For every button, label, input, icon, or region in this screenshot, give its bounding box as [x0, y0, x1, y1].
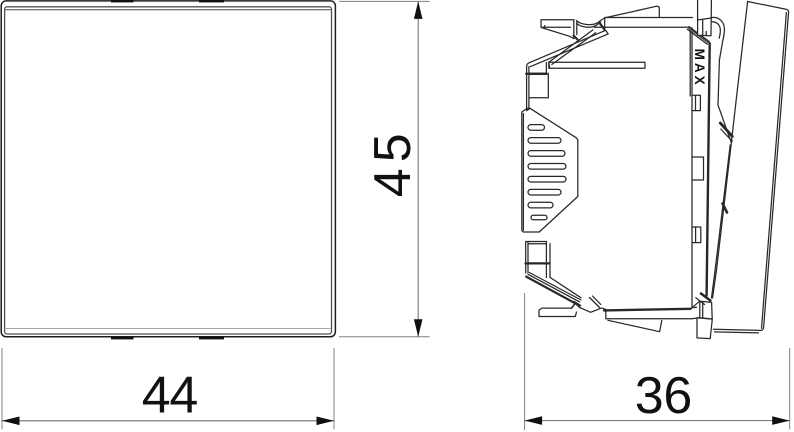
svg-text:45: 45 [364, 133, 422, 197]
svg-text:44: 44 [142, 366, 199, 424]
svg-text:36: 36 [635, 367, 693, 425]
svg-text:MAX: MAX [692, 49, 707, 88]
